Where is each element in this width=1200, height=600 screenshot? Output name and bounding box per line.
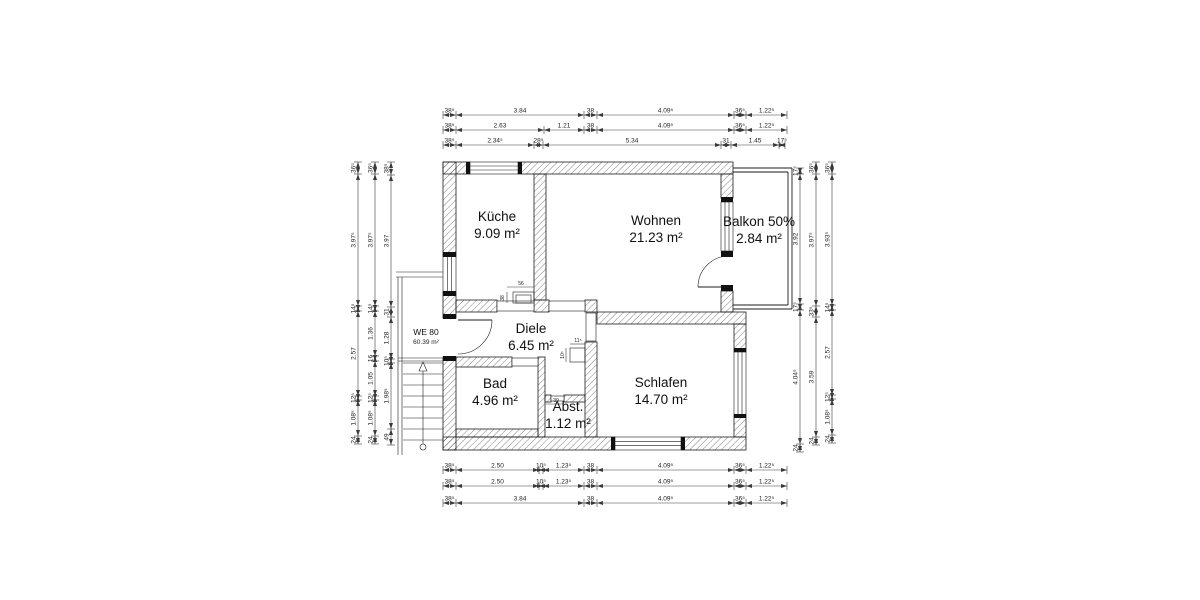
dimension-label: 24 [351, 436, 358, 444]
dimension-label: 1.22⁵ [759, 123, 775, 130]
room-area: 2.84 m² [736, 231, 782, 246]
frame-block [734, 414, 746, 418]
dimension-label: 38 [587, 108, 595, 115]
room-label-wohnen: Wohnen21.23 m² [629, 213, 683, 245]
dimension-label: 3.92 [793, 232, 800, 245]
dimension-label: 3.84 [514, 108, 527, 115]
wall [443, 357, 456, 450]
dimension-label: 14⁵ [351, 303, 358, 313]
opening-threshold [586, 313, 596, 341]
dimension-label: 14⁵ [825, 302, 832, 312]
frame-block [466, 162, 470, 174]
frame-block [518, 162, 522, 174]
dimension-label: 24 [809, 437, 816, 445]
dimension-label: 38⁵ [384, 163, 391, 173]
dimension-label: 10⁵ [536, 463, 546, 470]
detail-dimension-label: 38 [500, 295, 506, 301]
dimension-chain: 38⁵2.631.21384.09⁵36⁵1.22⁵ [443, 123, 787, 135]
window [470, 162, 518, 174]
dimension-label: 10⁵ [536, 479, 546, 486]
wall [456, 357, 512, 367]
dimension-label: 36⁵ [735, 479, 745, 486]
wall [545, 395, 551, 402]
dimension-label: 1.22⁵ [759, 496, 775, 503]
frame-block [721, 285, 733, 291]
dimension-label: 38⁵ [445, 463, 455, 470]
dimension-label: 49 [384, 433, 391, 441]
room-label-abst: Abst.1.12 m² [545, 399, 591, 431]
dimension-label: 3.93⁵ [825, 232, 832, 248]
dimension-label: 36⁵ [809, 163, 816, 173]
room-name: Balkon 50% [723, 214, 795, 229]
dimension-label: 1.21 [558, 123, 571, 130]
window [734, 352, 746, 415]
dimension-chain: 36⁵3.93⁵14⁵2.5712⁵1.08⁵24 [825, 162, 837, 443]
room-label-diele: Diele6.45 m² [508, 321, 554, 353]
floor-plan-page: 563811⁵10⁵39 38⁵3.84384.09⁵36⁵1.22⁵38⁵2.… [0, 0, 1200, 600]
frame-block [443, 252, 456, 257]
dimension-label: 1.08⁵ [825, 409, 832, 425]
wall [456, 300, 497, 312]
room-label-bad: Bad4.96 m² [472, 376, 518, 408]
dimension-label: 2.50 [491, 479, 504, 486]
wall [518, 162, 733, 174]
opening-threshold [549, 301, 585, 311]
frame-block [443, 291, 456, 296]
room-area: 14.70 m² [634, 392, 688, 407]
window [615, 437, 681, 450]
room-area: 4.96 m² [472, 393, 518, 408]
frame-block [443, 356, 456, 361]
dimension-label: 1.08⁵ [368, 410, 375, 426]
wall [443, 162, 456, 256]
dimension-label: 1.22⁵ [759, 479, 775, 486]
dimension-label: 3.97⁵ [368, 232, 375, 248]
dimension-chain: 36⁵3.97⁵33⁵3.5924 [809, 162, 821, 445]
dimension-label: 14⁵ [368, 303, 375, 313]
dimension-label: 12⁵ [368, 393, 375, 403]
room-area: 21.23 m² [629, 230, 683, 245]
dimension-label: 2.57 [825, 346, 832, 359]
dimension-label: 1.98⁵ [384, 388, 391, 404]
dimension-chain: 36⁵3.97⁵14⁵2.5712⁵1.08⁵24 [351, 162, 363, 444]
wall [585, 300, 597, 312]
dimension-label: 38 [587, 123, 595, 130]
room-name: Schlafen [635, 375, 688, 390]
dimension-chain: 38⁵2.5010⁵1.23⁵384.09⁵36⁵1.22⁵ [443, 463, 787, 475]
dimension-label: 38 [587, 463, 595, 470]
room-label-kueche: Küche9.09 m² [474, 209, 520, 241]
dimension-label: 3.97⁵ [351, 232, 358, 248]
dimension-label: 1.22⁵ [759, 108, 775, 115]
dimension-label: 36⁵ [351, 163, 358, 173]
dimension-label: 12⁵ [825, 392, 832, 402]
dimension-label: 36⁵ [825, 163, 832, 173]
room-name: Wohnen [631, 213, 681, 228]
dimension-label: 2.34⁵ [487, 138, 503, 145]
dimension-label: 1.05 [368, 372, 375, 385]
opening-threshold [497, 301, 534, 311]
dimension-label: 38 [587, 496, 595, 503]
dimension-label: 24 [825, 435, 832, 443]
dimension-label: 2.63 [494, 123, 507, 130]
dimension-label: 36⁵ [735, 496, 745, 503]
dimension-label: 3.97⁵ [809, 232, 816, 248]
stair-direction-arrow-icon [419, 362, 427, 371]
detail-dimension-label: 11⁵ [574, 338, 581, 344]
dimension-label: 1.28 [384, 331, 391, 344]
frame-block [443, 314, 456, 319]
dimension-label: 2.57 [351, 347, 358, 360]
dimension-label: 4.09⁵ [658, 463, 674, 470]
wall [534, 300, 549, 312]
dimension-label: 24 [793, 444, 800, 452]
dimension-label: 38⁵ [445, 138, 455, 145]
dimension-chain: 38⁵3.84384.09⁵36⁵1.22⁵ [443, 108, 787, 120]
dimension-label: 4.09⁵ [658, 108, 674, 115]
unit-label: WE 8060.39 m² [413, 327, 439, 346]
dimension-label: 24 [368, 436, 375, 444]
wall [538, 357, 545, 437]
room-name: Bad [483, 376, 507, 391]
dimension-chain: 38⁵3.84384.09⁵36⁵1.22⁵ [443, 496, 787, 508]
dimension-label: 17⁵ [793, 166, 800, 176]
room-name: Küche [478, 209, 516, 224]
dimension-label: 2.50 [491, 463, 504, 470]
dimension-label: 31 [722, 138, 730, 145]
wall [734, 415, 746, 437]
door-swing [698, 256, 729, 287]
room-label-schlafen: Schlafen14.70 m² [634, 375, 688, 407]
dimension-label: 4.09⁵ [658, 123, 674, 130]
detail-dimension-label: 56 [518, 281, 524, 287]
dimension-chain: 38⁵3.97311.2810⁵1.98⁵49 [384, 162, 396, 445]
dimension-label: 36⁵ [735, 463, 745, 470]
room-label-balkon: Balkon 50%2.84 m² [723, 214, 795, 246]
dimension-label: 1.23⁵ [556, 463, 572, 470]
room-area: 9.09 m² [474, 226, 520, 241]
frame-block [721, 197, 733, 202]
dimension-label: 4.04⁵ [793, 369, 800, 385]
frame-block [734, 348, 746, 352]
opening-threshold [512, 358, 538, 366]
dimension-label: 3.59 [809, 370, 816, 383]
dimension-label: 17⁵ [777, 138, 787, 145]
unit-name: WE 80 [413, 327, 439, 337]
dimension-label: 3.97 [384, 234, 391, 247]
door-swing [458, 320, 492, 354]
dimension-label: 12⁵ [351, 393, 358, 403]
dimension-label: 17⁵ [793, 302, 800, 312]
dimension-label: 16 [368, 355, 375, 363]
room-name: Abst. [553, 399, 584, 414]
frame-block [611, 437, 615, 450]
dimension-chain: 17⁵3.9217⁵4.04⁵24 [793, 166, 805, 452]
room-name: Diele [516, 321, 547, 336]
room-area: 6.45 m² [508, 338, 554, 353]
unit-area: 60.39 m² [413, 339, 439, 346]
dimension-label: 36⁵ [735, 108, 745, 115]
dimension-label: 38 [587, 479, 595, 486]
dimension-chain: 38⁵2.34⁵28⁵5.34311.4517⁵ [443, 138, 787, 150]
dimension-label: 38⁵ [445, 123, 455, 130]
dimension-label: 1.45 [749, 138, 762, 145]
wall [597, 312, 746, 324]
dimension-label: 5.34 [626, 138, 639, 145]
dimension-label: 31 [384, 308, 391, 316]
dimension-label: 36⁵ [735, 123, 745, 130]
dimension-label: 38⁵ [445, 108, 455, 115]
dimension-label: 1.22⁵ [759, 463, 775, 470]
dimension-label: 1.36 [368, 327, 375, 340]
dimension-label: 1.08⁵ [351, 410, 358, 426]
frame-block [681, 437, 685, 450]
dimension-label: 28⁵ [534, 138, 544, 145]
dimension-label: 38⁵ [445, 479, 455, 486]
dimension-label: 4.09⁵ [658, 479, 674, 486]
wall [443, 437, 615, 450]
detail-dimension-label: 10⁵ [560, 351, 566, 359]
dimension-label: 3.84 [514, 496, 527, 503]
floor-plan-drawing: 563811⁵10⁵39 38⁵3.84384.09⁵36⁵1.22⁵38⁵2.… [0, 0, 1200, 600]
window [443, 256, 456, 292]
dimension-label: 10⁵ [384, 356, 391, 366]
dimension-label: 1.23⁵ [556, 479, 572, 486]
dimension-chain: 38⁵2.5010⁵1.23⁵384.09⁵36⁵1.22⁵ [443, 479, 787, 491]
wall [734, 324, 746, 352]
wall [721, 174, 733, 198]
wall [681, 437, 746, 450]
dimension-label: 36⁵ [368, 163, 375, 173]
staircase [396, 272, 443, 455]
dimension-label: 4.09⁵ [658, 496, 674, 503]
dimension-chain: 36⁵3.97⁵14⁵1.36161.0512⁵1.08⁵24 [368, 162, 380, 444]
room-area: 1.12 m² [545, 416, 591, 431]
dimension-label: 33⁵ [809, 306, 816, 316]
dimension-label: 38⁵ [445, 496, 455, 503]
wall [534, 174, 546, 300]
wall [721, 291, 733, 312]
wall [456, 429, 538, 437]
